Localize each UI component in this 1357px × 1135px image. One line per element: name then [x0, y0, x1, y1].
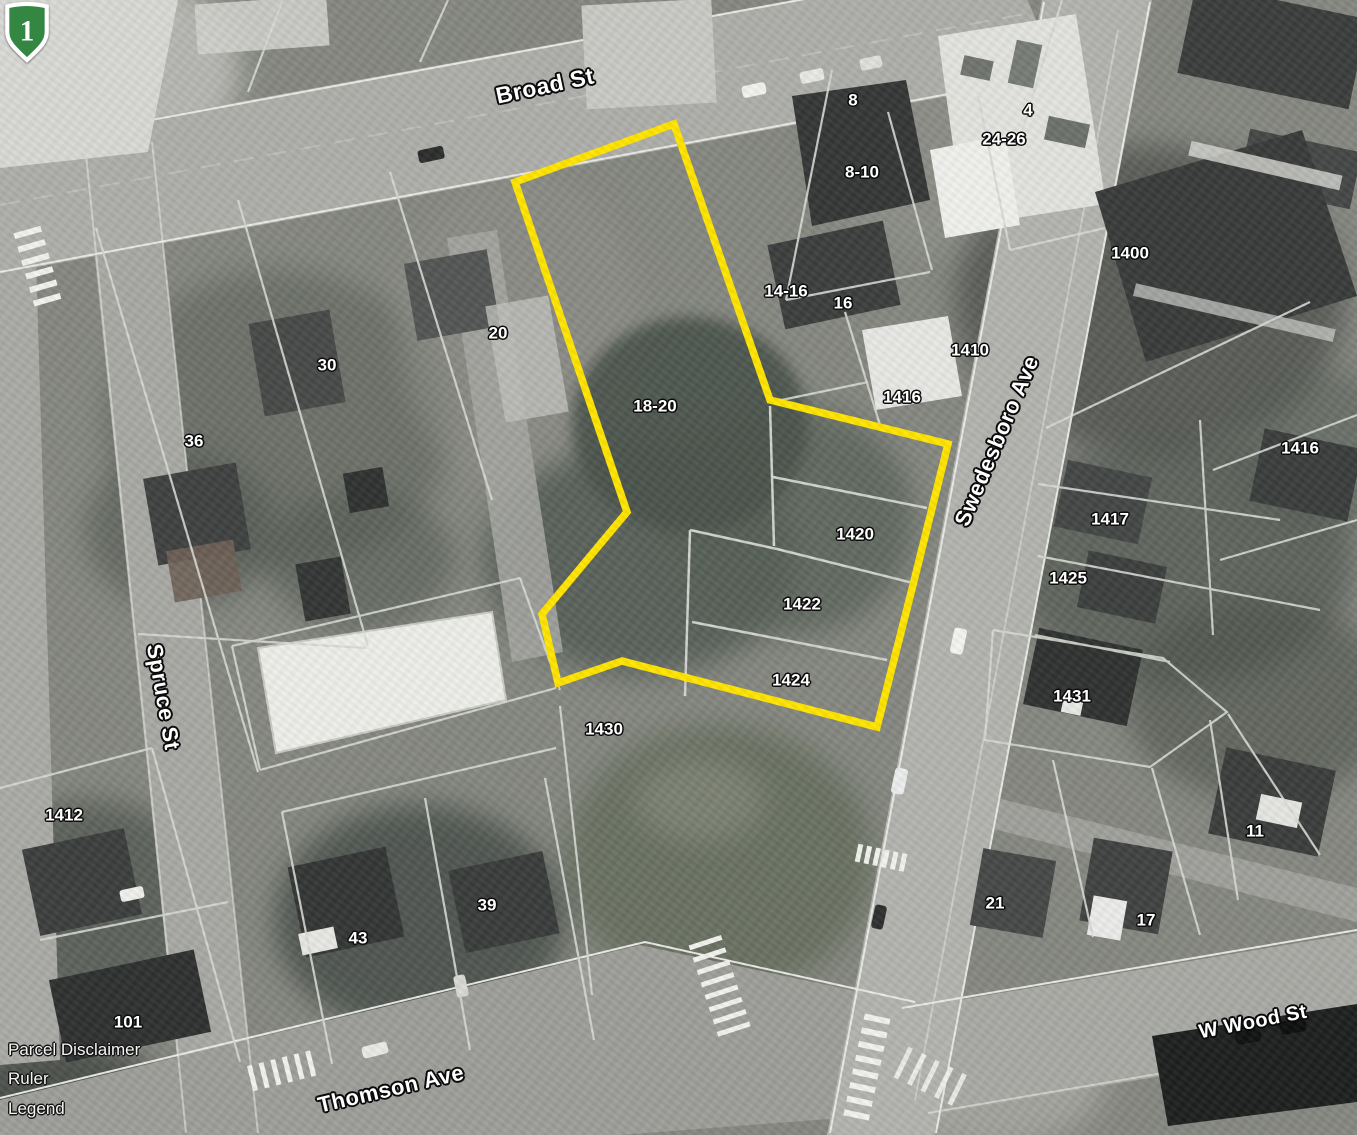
menu-item-ruler[interactable]: Ruler	[8, 1069, 140, 1089]
map-scene	[0, 0, 1357, 1135]
menu-item-legend[interactable]: Legend	[8, 1099, 140, 1119]
route-1-shield: 1	[0, 0, 54, 66]
aerial-map-canvas[interactable]: 1 8424-268-1014-161614001410141620303618…	[0, 0, 1357, 1135]
map-tools-menu: Parcel Disclaimer Ruler Legend	[8, 1040, 140, 1128]
menu-item-parcel-disclaimer[interactable]: Parcel Disclaimer	[8, 1040, 140, 1060]
route-shield-number: 1	[20, 15, 35, 47]
